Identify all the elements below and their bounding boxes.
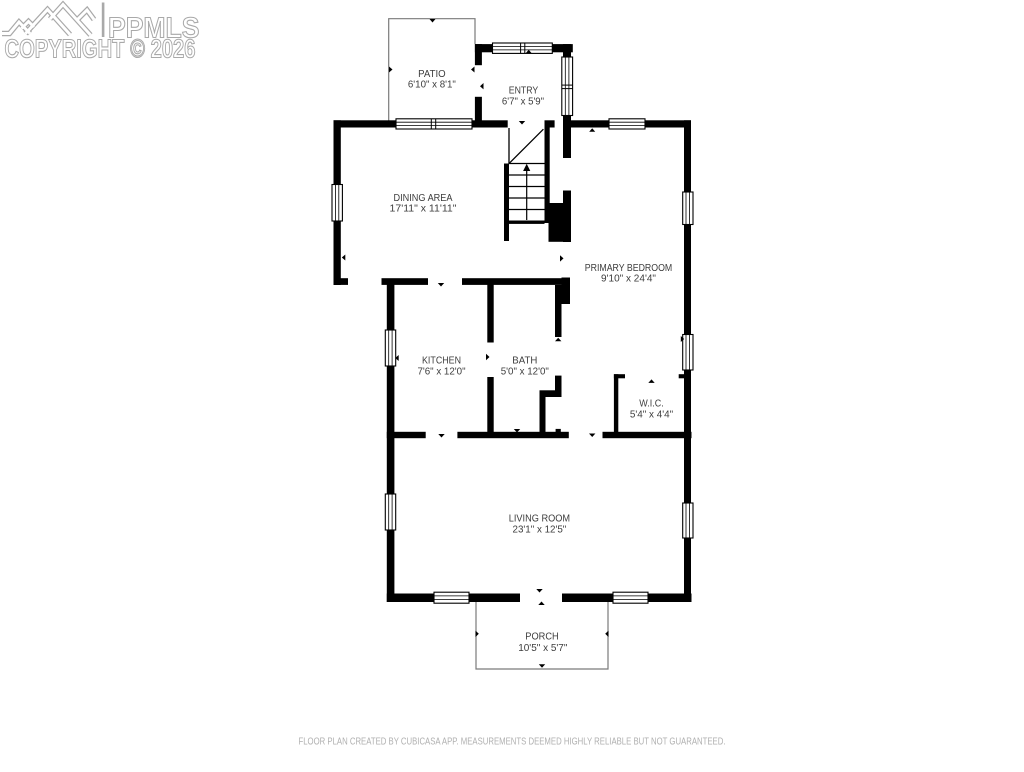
svg-text:FLOOR PLAN CREATED BY CUBICASA: FLOOR PLAN CREATED BY CUBICASA APP. MEAS… bbox=[299, 736, 726, 747]
svg-text:7'6" x 12'0": 7'6" x 12'0" bbox=[417, 365, 465, 377]
svg-text:6'10" x 8'1": 6'10" x 8'1" bbox=[408, 78, 456, 90]
svg-text:10'5" x 5'7": 10'5" x 5'7" bbox=[518, 642, 567, 654]
svg-text:5'4" x 4'4": 5'4" x 4'4" bbox=[630, 408, 674, 420]
svg-text:6'7" x 5'9": 6'7" x 5'9" bbox=[502, 95, 544, 107]
svg-text:23'1" x 12'5": 23'1" x 12'5" bbox=[513, 523, 567, 535]
svg-text:5'0" x 12'0": 5'0" x 12'0" bbox=[501, 365, 549, 377]
svg-text:PORCH: PORCH bbox=[525, 631, 558, 643]
svg-text:9'10" x 24'4": 9'10" x 24'4" bbox=[601, 273, 656, 285]
svg-text:COPYRIGHT © 2026: COPYRIGHT © 2026 bbox=[5, 36, 196, 64]
svg-text:17'11" x 11'11": 17'11" x 11'11" bbox=[390, 203, 457, 215]
